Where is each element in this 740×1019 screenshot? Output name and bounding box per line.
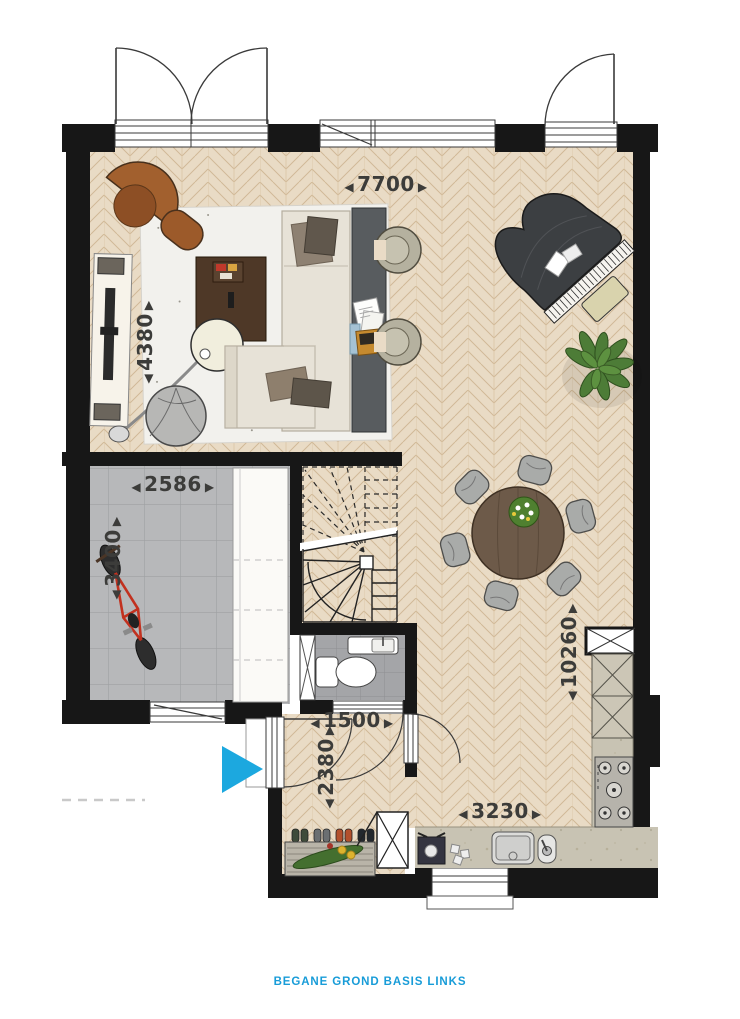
meter-cupboard (300, 635, 315, 700)
speaker (98, 258, 124, 275)
faucet (538, 835, 556, 863)
cushion (304, 217, 338, 256)
speaker (94, 404, 120, 421)
washbasin (348, 637, 398, 654)
floor-plan-svg: ◀7700▶ ◀4380▶ ◀2586▶ ◀3400▶ ◀10260▶ ◀150… (0, 0, 740, 1019)
dim-house-depth: ◀10260▶ (557, 603, 581, 701)
kitchen-window (427, 868, 513, 909)
tall-cabinet (592, 696, 633, 738)
storage-cabinet (233, 468, 288, 702)
wall-niche-box (586, 628, 635, 654)
tv-sideboard (90, 254, 132, 427)
storage-door (150, 702, 225, 722)
plan-caption: BEGANE GROND BASIS LINKS (0, 976, 740, 988)
sink (492, 832, 534, 864)
french-doors (115, 48, 268, 147)
cushion (291, 378, 332, 408)
garden-door (545, 54, 617, 147)
gas-hob (595, 757, 633, 827)
pouf (146, 386, 206, 446)
floor-plan-page: ◀7700▶ ◀4380▶ ◀2586▶ ◀3400▶ ◀10260▶ ◀150… (0, 0, 740, 1019)
dining-table (472, 487, 564, 579)
tall-cabinet (592, 654, 633, 696)
tub-chair (374, 319, 421, 365)
living-room-window (320, 120, 495, 147)
toilet (316, 657, 376, 687)
coat-rack (285, 829, 375, 876)
tub-chair (374, 227, 421, 273)
table-flowers (509, 497, 539, 527)
